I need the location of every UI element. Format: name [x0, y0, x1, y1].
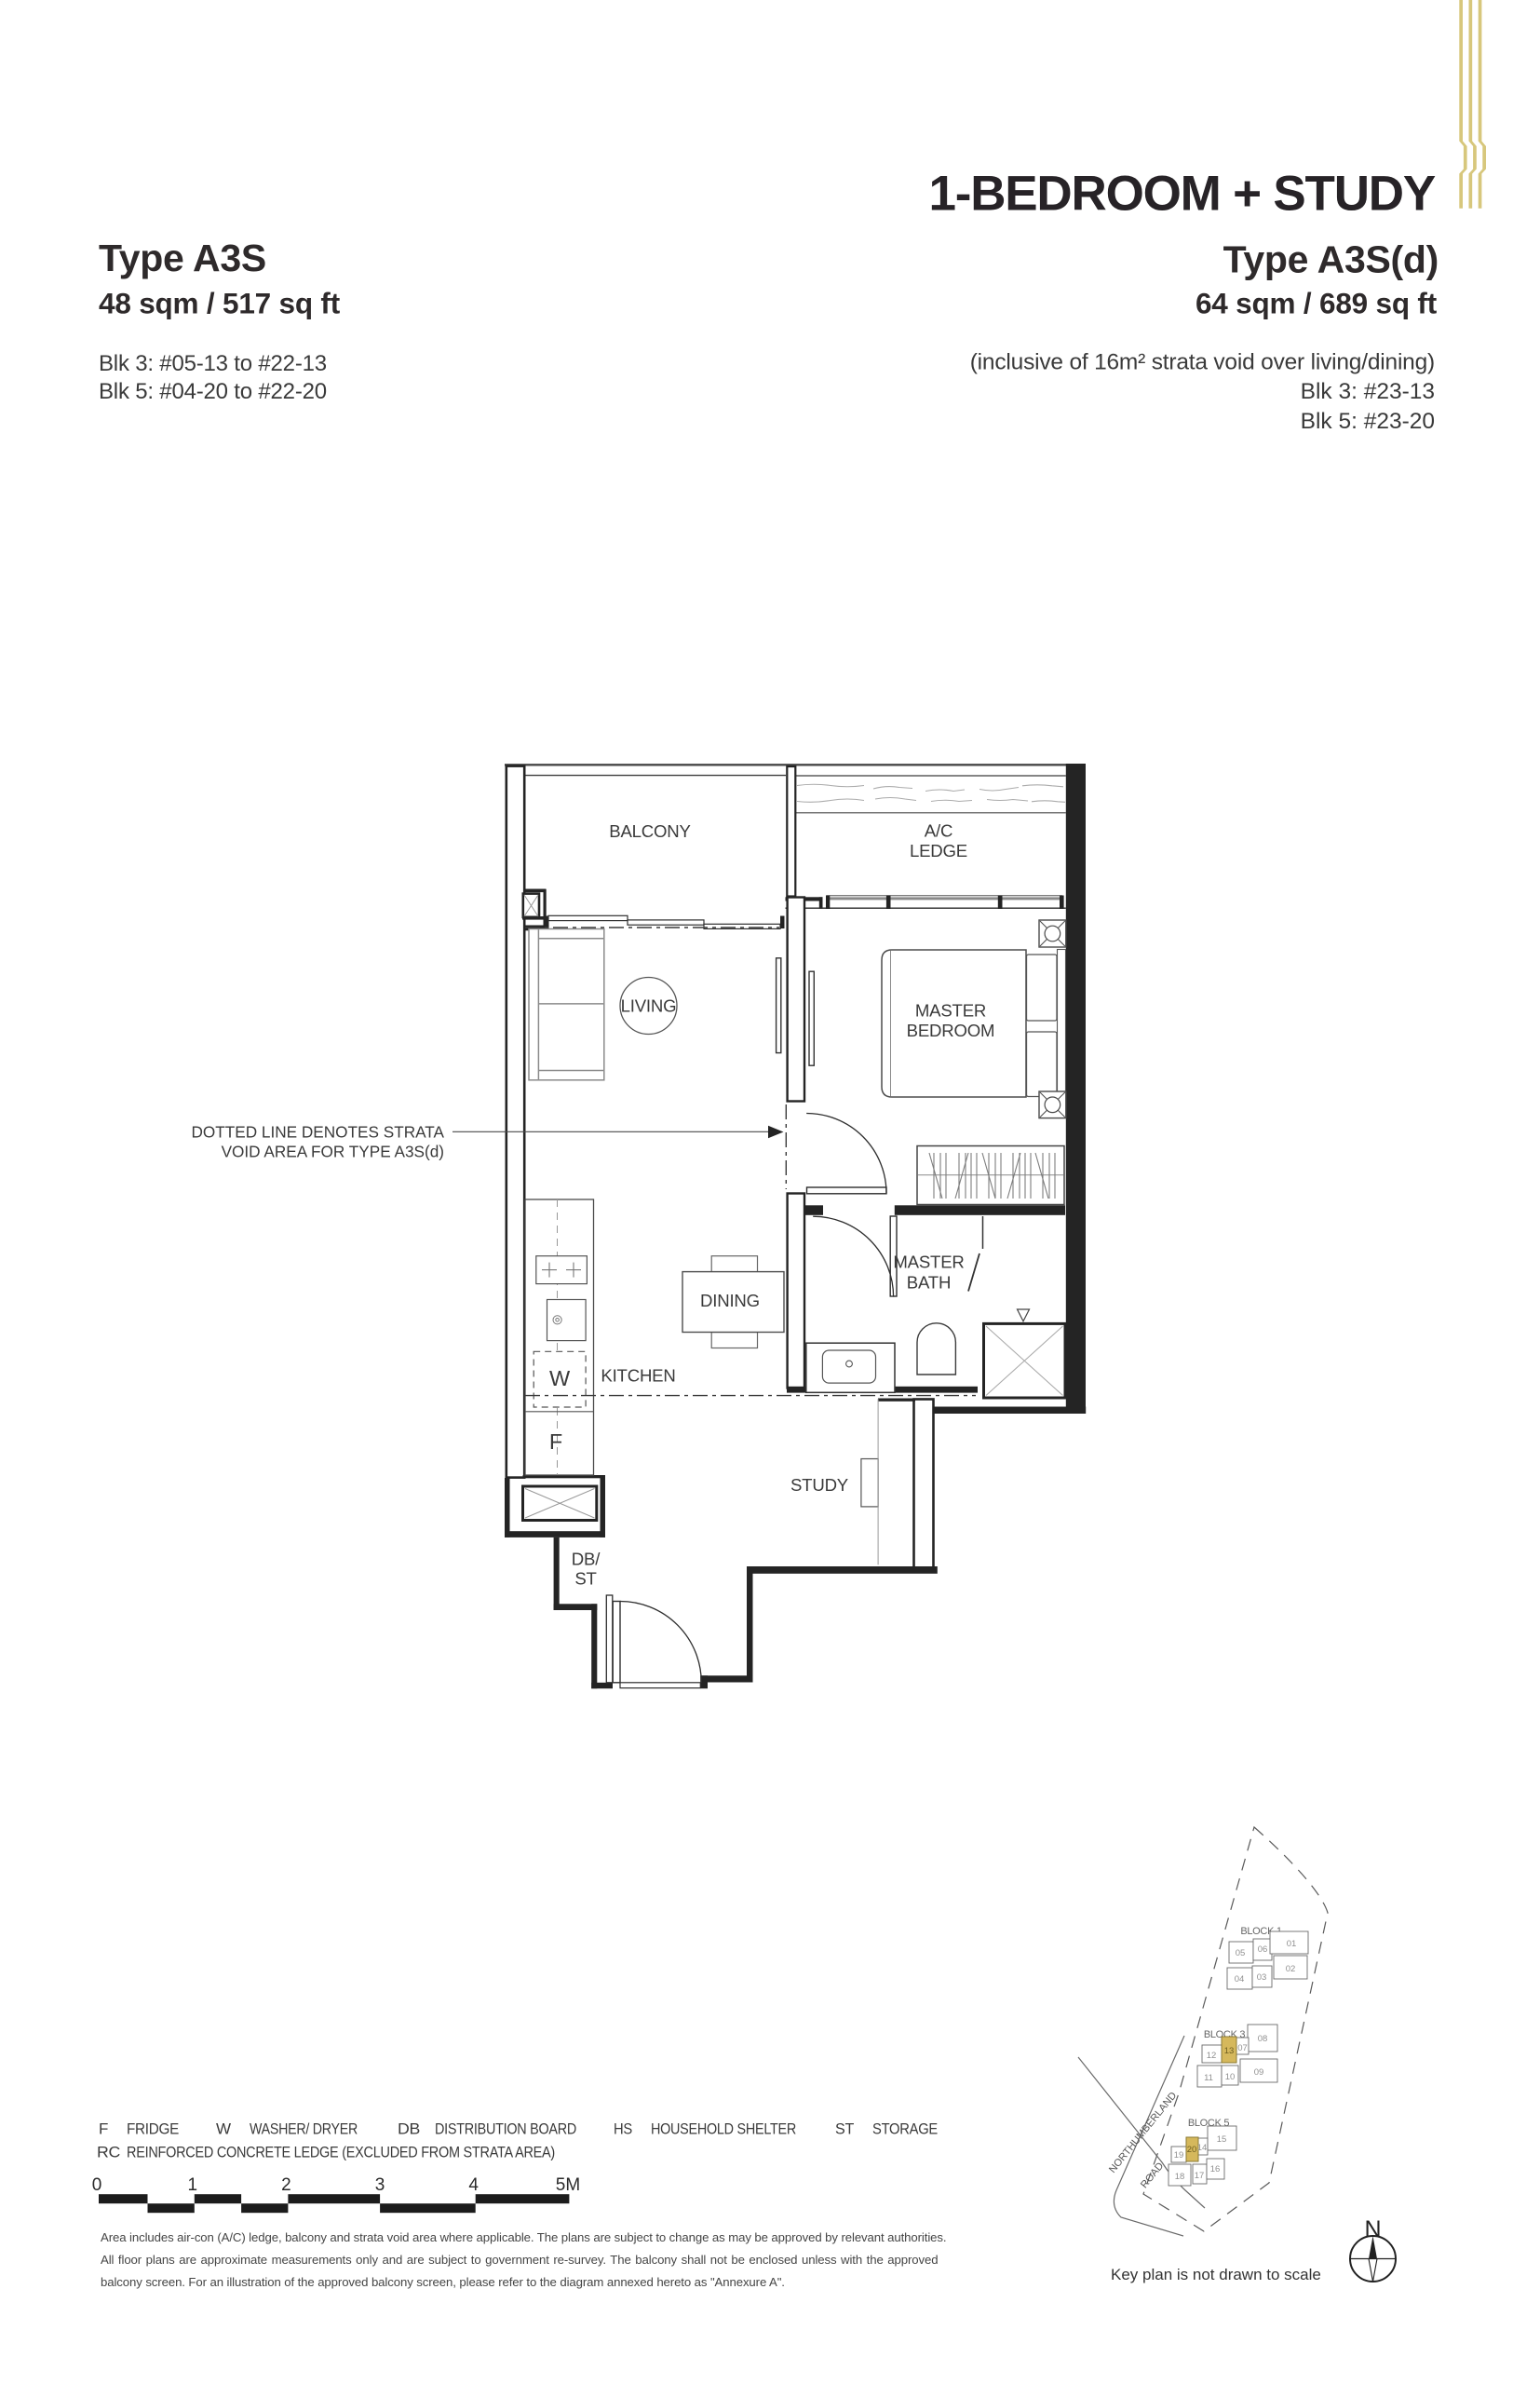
svg-text:balcony screen. For an illustr: balcony screen. For an illustration of t…: [101, 2275, 785, 2289]
svg-text:STUDY: STUDY: [790, 1475, 848, 1495]
svg-text:20: 20: [1187, 2145, 1197, 2155]
svg-text:12: 12: [1207, 2051, 1217, 2061]
svg-text:LIVING: LIVING: [621, 996, 677, 1016]
svg-text:64 sqm / 689 sq ft: 64 sqm / 689 sq ft: [1196, 287, 1438, 320]
svg-text:Area includes air-con (A/C) le: Area includes air-con (A/C) ledge, balco…: [101, 2230, 946, 2244]
svg-text:Blk 5: #23-20: Blk 5: #23-20: [1301, 409, 1435, 434]
svg-text:HOUSEHOLD SHELTER: HOUSEHOLD SHELTER: [651, 2120, 796, 2138]
svg-text:02: 02: [1286, 1964, 1296, 1974]
svg-text:DOTTED LINE DENOTES STRATA: DOTTED LINE DENOTES STRATA: [191, 1123, 444, 1142]
svg-text:ST: ST: [574, 1569, 596, 1589]
svg-text:Type A3S(d): Type A3S(d): [1223, 238, 1439, 281]
svg-text:19: 19: [1174, 2150, 1184, 2160]
svg-text:17: 17: [1195, 2171, 1205, 2181]
svg-text:48 sqm / 517 sq ft: 48 sqm / 517 sq ft: [99, 287, 341, 320]
svg-text:4: 4: [468, 2175, 479, 2195]
svg-text:18: 18: [1175, 2172, 1185, 2182]
svg-text:BEDROOM: BEDROOM: [907, 1021, 995, 1040]
svg-text:07: 07: [1237, 2043, 1248, 2053]
svg-text:BATH: BATH: [907, 1273, 951, 1293]
svg-text:1: 1: [188, 2175, 198, 2195]
svg-text:(inclusive of 16m² strata void: (inclusive of 16m² strata void over livi…: [970, 350, 1435, 375]
svg-text:14: 14: [1197, 2143, 1208, 2153]
svg-text:01: 01: [1287, 1939, 1297, 1949]
svg-text:ST: ST: [835, 2120, 854, 2138]
svg-text:1-BEDROOM + STUDY: 1-BEDROOM + STUDY: [928, 167, 1435, 222]
svg-text:STORAGE: STORAGE: [872, 2120, 938, 2138]
svg-text:A/C: A/C: [925, 821, 952, 841]
svg-text:Type A3S: Type A3S: [99, 237, 266, 279]
svg-text:MASTER: MASTER: [893, 1253, 964, 1272]
svg-text:DB: DB: [398, 2120, 420, 2138]
svg-text:F: F: [99, 2120, 108, 2138]
svg-text:W: W: [216, 2120, 231, 2138]
svg-text:2: 2: [281, 2175, 291, 2195]
svg-text:5M: 5M: [556, 2175, 580, 2195]
svg-text:KITCHEN: KITCHEN: [601, 1366, 675, 1386]
svg-text:LEDGE: LEDGE: [910, 841, 967, 860]
svg-text:16: 16: [1210, 2164, 1221, 2174]
svg-text:Key plan is not drawn to scale: Key plan is not drawn to scale: [1111, 2266, 1321, 2283]
svg-text:03: 03: [1257, 1972, 1267, 1983]
svg-text:DISTRIBUTION BOARD: DISTRIBUTION BOARD: [435, 2120, 576, 2138]
svg-text:HS: HS: [614, 2120, 632, 2138]
svg-text:DINING: DINING: [700, 1291, 760, 1310]
svg-text:11: 11: [1204, 2073, 1213, 2083]
svg-text:F: F: [549, 1429, 562, 1454]
svg-text:RC: RC: [97, 2144, 120, 2161]
svg-text:W: W: [549, 1366, 571, 1390]
svg-text:BALCONY: BALCONY: [609, 821, 690, 841]
svg-text:MASTER: MASTER: [915, 1001, 986, 1021]
svg-text:DB/: DB/: [572, 1550, 601, 1569]
svg-text:15: 15: [1217, 2134, 1227, 2145]
svg-text:Blk 5: #04-20 to #22-20: Blk 5: #04-20 to #22-20: [99, 379, 327, 404]
svg-text:3: 3: [375, 2175, 385, 2195]
svg-text:10: 10: [1225, 2072, 1236, 2082]
svg-text:Blk 3: #05-13 to #22-13: Blk 3: #05-13 to #22-13: [99, 351, 327, 376]
svg-text:08: 08: [1258, 2034, 1268, 2044]
svg-text:FRIDGE: FRIDGE: [127, 2120, 179, 2138]
svg-text:04: 04: [1235, 1974, 1245, 1984]
svg-text:Blk 3: #23-13: Blk 3: #23-13: [1301, 379, 1435, 404]
svg-text:All floor plans are approximat: All floor plans are approximate measurem…: [101, 2253, 938, 2267]
svg-text:13: 13: [1224, 2046, 1235, 2056]
svg-text:06: 06: [1258, 1944, 1268, 1955]
svg-text:05: 05: [1236, 1948, 1246, 1958]
svg-text:0: 0: [92, 2175, 102, 2195]
svg-text:09: 09: [1254, 2067, 1264, 2078]
svg-text:VOID AREA FOR TYPE A3S(d): VOID AREA FOR TYPE A3S(d): [222, 1143, 444, 1161]
svg-text:WASHER/ DRYER: WASHER/ DRYER: [250, 2120, 358, 2138]
svg-text:REINFORCED CONCRETE LEDGE (EXC: REINFORCED CONCRETE LEDGE (EXCLUDED FROM…: [127, 2144, 555, 2161]
